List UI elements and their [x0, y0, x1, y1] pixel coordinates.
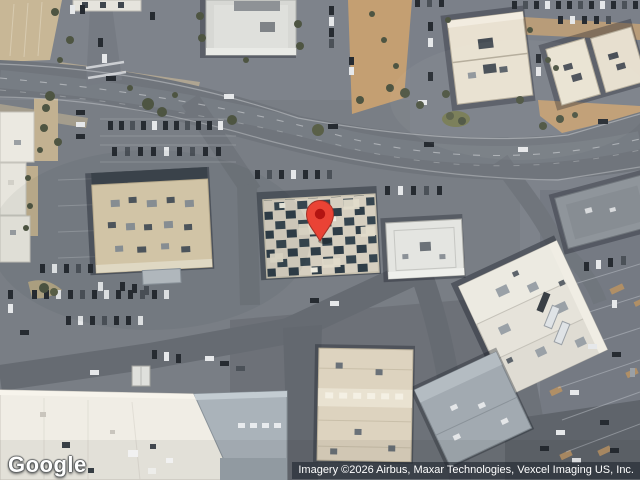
attribution-text: Imagery ©2026 Airbus, Maxar Technologies… — [292, 462, 640, 479]
building-top-center — [200, 0, 296, 58]
satellite-map[interactable]: Google Imagery ©2026 Airbus, Maxar Techn… — [0, 0, 640, 480]
building-small-structure — [132, 366, 150, 386]
satellite-imagery[interactable] — [0, 0, 640, 480]
pin-inner-circle — [315, 209, 325, 219]
building-white-east — [380, 214, 465, 282]
google-logo[interactable]: Google — [8, 452, 87, 478]
